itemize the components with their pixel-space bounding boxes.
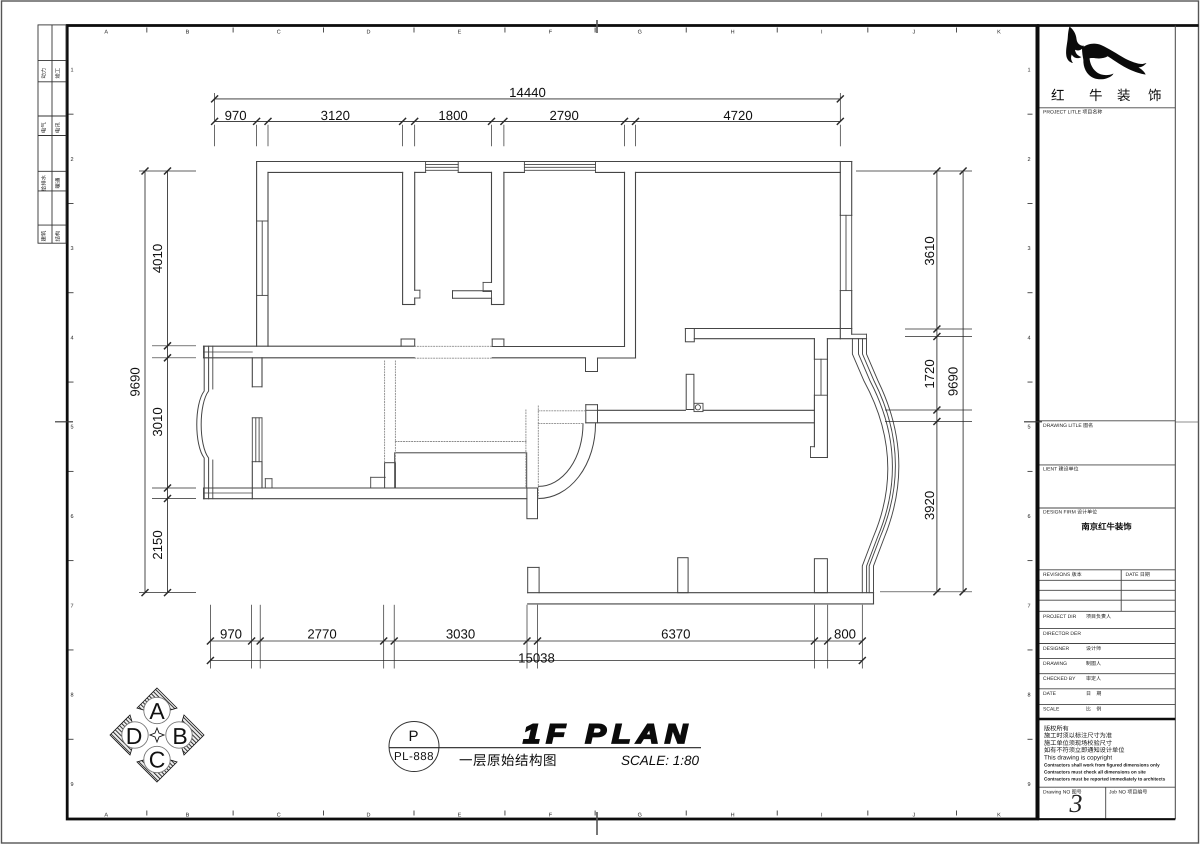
svg-text:DATE: DATE [1043,691,1057,697]
svg-text:施工单位须现场校验尺寸: 施工单位须现场校验尺寸 [1044,739,1112,747]
svg-text:9690: 9690 [946,367,961,396]
svg-text:竣工: 竣工 [55,67,62,78]
svg-text:4720: 4720 [723,108,752,123]
svg-text:红: 红 [1051,88,1065,103]
svg-text:2: 2 [1027,157,1030,163]
svg-text:电讯: 电讯 [55,122,62,133]
svg-text:1800: 1800 [438,108,467,123]
svg-text:CHECKED BY: CHECKED BY [1043,676,1076,682]
svg-text:8: 8 [1027,693,1030,699]
svg-text:970: 970 [220,627,242,642]
svg-text:K: K [997,813,1001,819]
svg-text:5: 5 [1027,425,1030,431]
svg-text:3030: 3030 [446,627,475,642]
svg-text:比 例: 比 例 [1086,706,1103,713]
svg-text:日 期: 日 期 [1086,690,1103,697]
svg-text:5: 5 [71,425,74,431]
svg-text:2: 2 [71,157,74,163]
svg-text:动力: 动力 [41,68,48,79]
svg-text:PROJECT DIR: PROJECT DIR [1043,614,1077,620]
svg-text:1F PLAN: 1F PLAN [523,719,693,749]
svg-text:装: 装 [1117,88,1131,103]
svg-text:饰: 饰 [1148,88,1162,103]
svg-text:Contractors must check all dim: Contractors must check all dimensions on… [1044,770,1146,775]
svg-text:3: 3 [71,246,74,252]
svg-text:8: 8 [71,693,74,699]
svg-text:审定人: 审定人 [1086,675,1101,682]
svg-text:C: C [149,747,166,773]
svg-text:This drawing is copyright: This drawing is copyright [1044,754,1112,761]
svg-text:3920: 3920 [922,491,937,520]
svg-text:800: 800 [834,627,856,642]
svg-text:如有不符须立即通知设计单位: 如有不符须立即通知设计单位 [1044,746,1124,754]
svg-text:970: 970 [225,108,247,123]
svg-text:4: 4 [1027,335,1030,341]
svg-text:9: 9 [1027,782,1030,788]
svg-text:3610: 3610 [922,236,937,265]
svg-text:2790: 2790 [550,108,579,123]
svg-text:项目负责人: 项目负责人 [1086,613,1111,620]
svg-text:南京红牛装饰: 南京红牛装饰 [1081,522,1132,532]
svg-text:7: 7 [71,603,74,609]
svg-text:DRAWING LITLE 图名: DRAWING LITLE 图名 [1043,422,1093,429]
svg-text:结构: 结构 [55,230,62,241]
svg-text:3: 3 [1069,789,1083,818]
svg-text:LIENT 建设单位: LIENT 建设单位 [1043,466,1078,473]
svg-text:PROJECT LITLE 项目名称: PROJECT LITLE 项目名称 [1043,109,1102,116]
svg-text:1: 1 [71,68,74,74]
svg-text:3010: 3010 [150,407,165,436]
svg-text:6: 6 [1027,514,1030,520]
svg-text:6370: 6370 [661,627,690,642]
svg-text:C: C [277,30,281,36]
svg-text:E: E [458,813,462,819]
svg-text:B: B [186,30,190,36]
svg-text:A: A [104,30,108,36]
svg-text:D: D [126,723,143,749]
svg-text:1720: 1720 [922,359,937,388]
svg-text:2150: 2150 [150,530,165,559]
svg-text:DATE 日期: DATE 日期 [1126,571,1150,578]
svg-text:9690: 9690 [128,367,143,396]
svg-text:A: A [149,698,165,724]
svg-text:Contractors must be reported i: Contractors must be reported immediately… [1044,777,1166,782]
svg-text:A: A [104,813,108,819]
svg-text:一层原始结构图: 一层原始结构图 [459,753,557,768]
svg-text:P: P [408,728,418,745]
svg-text:暖通: 暖通 [55,177,62,188]
svg-text:J: J [913,30,916,36]
svg-text:6: 6 [71,514,74,520]
svg-text:4: 4 [71,335,74,341]
svg-text:D: D [367,30,371,36]
svg-text:9: 9 [71,782,74,788]
svg-text:版权所有: 版权所有 [1044,725,1069,733]
svg-text:B: B [172,723,187,749]
svg-text:给排水: 给排水 [41,174,48,191]
svg-text:SCALE: SCALE [1043,707,1060,713]
svg-text:SCALE: 1:80: SCALE: 1:80 [621,753,700,768]
svg-text:2770: 2770 [307,627,336,642]
svg-text:DRAWING: DRAWING [1043,661,1067,667]
svg-text:C: C [277,813,281,819]
svg-text:电气: 电气 [41,122,48,133]
svg-text:3120: 3120 [321,108,350,123]
svg-text:4010: 4010 [150,244,165,273]
svg-text:G: G [638,813,642,819]
svg-text:G: G [638,30,642,36]
svg-text:DESIGN FIRM 设计单位: DESIGN FIRM 设计单位 [1043,509,1097,516]
svg-text:Job NO 项目编号: Job NO 项目编号 [1109,789,1147,796]
svg-text:J: J [913,813,916,819]
svg-text:REVISIONS 版本: REVISIONS 版本 [1043,571,1082,578]
svg-text:B: B [186,813,190,819]
svg-text:PL-888: PL-888 [394,751,434,763]
svg-text:制图人: 制图人 [1086,660,1101,667]
svg-text:Contractors shall work from fi: Contractors shall work from figured dime… [1044,763,1160,768]
svg-text:15038: 15038 [518,651,555,666]
svg-text:H: H [731,813,735,819]
svg-text:设计师: 设计师 [1086,645,1101,652]
svg-text:1: 1 [1027,68,1030,74]
svg-text:施工时须以标注尺寸为准: 施工时须以标注尺寸为准 [1044,732,1112,740]
svg-text:K: K [997,30,1001,36]
svg-text:D: D [367,813,371,819]
svg-text:建筑: 建筑 [41,230,48,241]
svg-text:14440: 14440 [509,85,546,100]
svg-text:牛: 牛 [1089,88,1103,103]
svg-text:DESIGNER: DESIGNER [1043,646,1070,652]
svg-text:3: 3 [1027,246,1030,252]
svg-text:H: H [731,30,735,36]
svg-text:DIRECTOR DER: DIRECTOR DER [1043,631,1081,637]
svg-text:E: E [458,30,462,36]
svg-text:7: 7 [1027,603,1030,609]
